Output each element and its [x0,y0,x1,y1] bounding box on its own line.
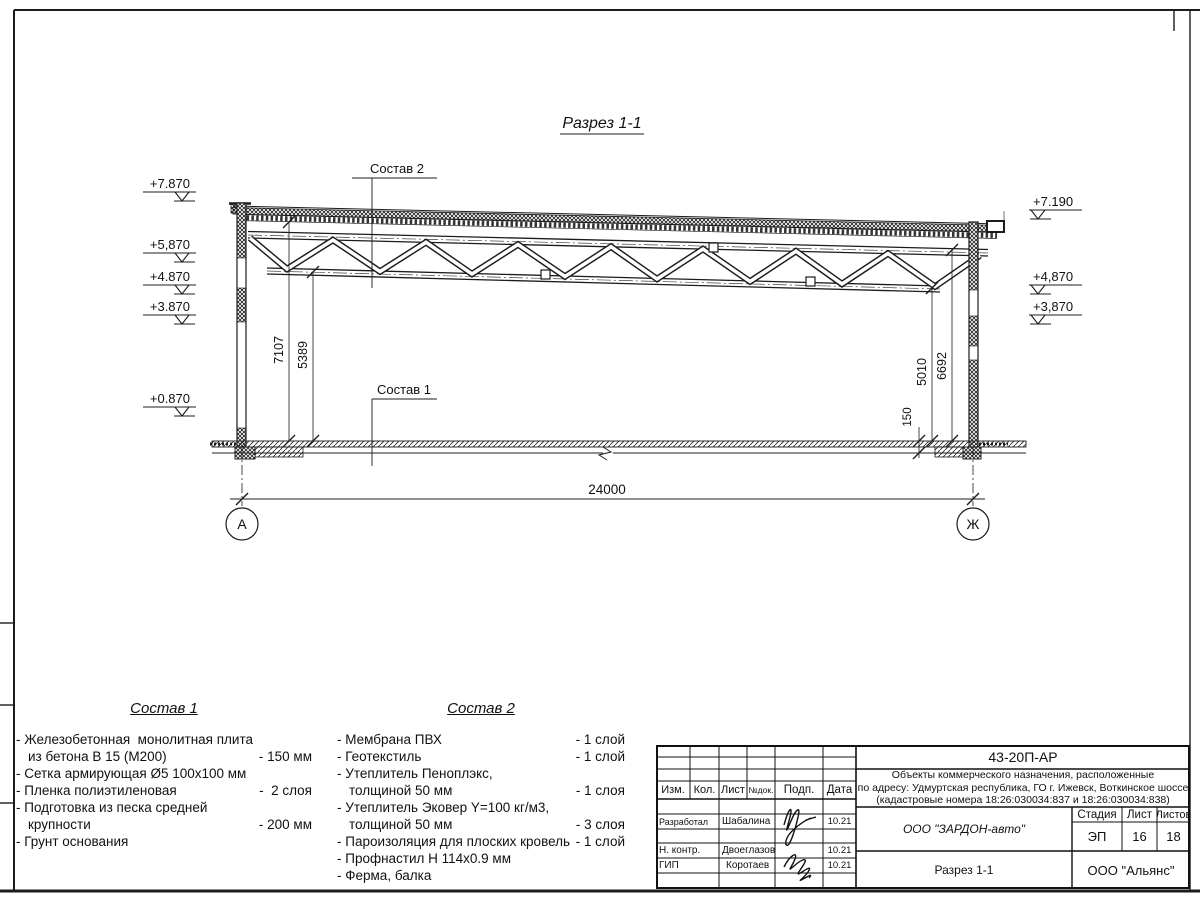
tb-name-shabalina: Шабалина [719,814,778,829]
svg-text:Состав 1: Состав 1 [377,382,431,397]
axis-bubble-zh: Ж [957,508,989,540]
tb-col-podp: Подп. [775,781,823,799]
list-item: - Пленка полиэтиленовая- 2 слоя [16,782,312,799]
tb-role-nkontr: Н. контр. [656,843,722,858]
truss-splice-plate [806,277,815,286]
tb-contractor: ООО "Альянс" [1072,851,1190,889]
tb-date: 10.21 [823,843,856,858]
tb-doc-code: 43-20П-АР [856,745,1190,769]
tb-sheets-label: Листов [1157,807,1190,822]
tb-stage-label: Стадия [1072,807,1122,822]
list-item: - Геотекстиль- 1 слой [337,748,625,765]
axis-bubble-a: А [226,508,258,540]
svg-text:+7.870: +7.870 [150,176,190,191]
footing-left [235,447,255,459]
list-item: - Подготовка из песка средней [16,799,312,816]
elevation-mark: +7.190 [1029,194,1082,219]
sostav1-list: Состав 1 - Железобетонная монолитная пли… [16,700,312,850]
svg-text:+4.870: +4.870 [150,269,190,284]
right-wall [969,222,978,447]
dim-24000: 24000 [588,482,626,497]
tb-sheet-title: Разрез 1-1 [856,851,1072,889]
tb-col-kol: Кол. [690,781,719,799]
tb-name-korotaev: Коротаев [719,858,782,873]
svg-text:Состав 2: Состав 2 [370,161,424,176]
svg-text:А: А [237,516,247,532]
drawing-title: Разрез 1-1 [562,115,641,132]
truss-splice-plate [541,270,550,279]
svg-text:+3,870: +3,870 [1033,299,1073,314]
tb-date: 10.21 [823,814,856,829]
list-item: крупности- 200 мм [16,816,312,833]
dim-5389: 5389 [296,341,310,369]
elevation-mark: +7.870 [143,176,196,201]
dim-150: 150 [902,407,914,426]
list-item: из бетона В 15 (М200)- 150 мм [16,748,312,765]
tb-col-data: Дата [823,781,856,799]
sostav2-list: Состав 2 - Мембрана ПВХ- 1 слой - Геотек… [337,700,625,884]
list-item: толщиной 50 мм- 3 слоя [337,816,625,833]
roof-truss [248,232,988,293]
dim-5010: 5010 [915,358,929,386]
elevation-mark: +4,870 [1029,269,1082,294]
elevation-marks-left: +7.870 +5,870 +4.870 +3.870 +0.870 [143,176,196,416]
list-item: - Ферма, балка [337,867,625,884]
tb-name-dvoeglazov: Двоеглазов [719,843,778,858]
elevation-marks-right: +7.190 +4,870 +3,870 [1029,194,1082,324]
list-item: - Утеплитель Эковер Y=100 кг/м3, [337,799,625,816]
elevation-mark: +4.870 [143,269,196,294]
list-item: - Пароизоляция для плоских кровель- 1 сл… [337,833,625,850]
tb-col-list: Лист [719,781,747,799]
svg-text:+0.870: +0.870 [150,391,190,406]
list-item: - Профнастил Н 114х0.9 мм [337,850,625,867]
dim-6692: 6692 [935,352,949,380]
tb-company: ООО "ЗАРДОН-авто" [856,807,1072,851]
svg-text:+3.870: +3.870 [150,299,190,314]
footing-right [963,447,981,459]
fold-marks [0,623,13,803]
tb-sheets-value: 18 [1157,822,1190,851]
tb-col-izm: Изм. [656,781,690,799]
list-item: - Грунт основания [16,833,312,850]
tb-sheet-value: 16 [1122,822,1157,851]
list-item: - Сетка армирующая Ø5 100х100 мм [16,765,312,782]
tb-stage-value: ЭП [1072,822,1122,851]
span-dimension: 24000 [230,447,985,506]
sostav1-title: Состав 1 [16,700,312,717]
sostav2-title: Состав 2 [337,700,625,717]
list-item: толщиной 50 мм- 1 слоя [337,782,625,799]
tb-date: 10.21 [823,858,856,873]
floor-slab [210,441,1026,460]
left-wall [231,203,246,447]
svg-text:Ж: Ж [967,516,980,532]
truss-web [250,238,980,287]
svg-text:+5,870: +5,870 [150,237,190,252]
roof-edge-cap [987,221,1004,232]
tb-role-razrabotal: Разработал [656,814,722,829]
title-block: Изм. Кол. Лист №док. Подп. Дата Разработ… [656,745,1190,889]
tb-col-ndok: №док. [747,781,775,799]
elevation-mark: +3,870 [1029,299,1082,324]
list-item: - Железобетонная монолитная плита [16,731,312,748]
svg-text:+7.190: +7.190 [1033,194,1073,209]
svg-text:+4,870: +4,870 [1033,269,1073,284]
tb-project-name: Объекты коммерческого назначения, распол… [856,769,1190,807]
elevation-mark: +0.870 [143,391,196,416]
signature [784,809,816,880]
tb-sheet-label: Лист [1122,807,1157,822]
list-item: - Утеплитель Пеноплэкс, [337,765,625,782]
elevation-mark: +3.870 [143,299,196,324]
dim-7107: 7107 [272,336,286,364]
list-item: - Мембрана ПВХ- 1 слой [337,731,625,748]
truss-splice-plate [709,243,718,252]
elevation-mark: +5,870 [143,237,196,262]
tb-role-gip: ГИП [656,858,722,873]
drawing-sheet: { "drawing": { "title": "Разрез 1-1", "s… [0,0,1200,900]
